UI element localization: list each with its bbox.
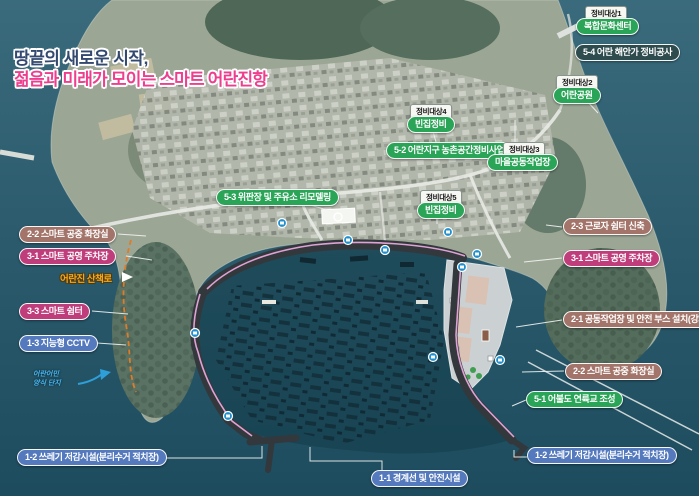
title-line-1: 땅끝의 새로운 시작,: [14, 48, 267, 69]
callout-eoran-park: 어란공원: [553, 87, 601, 104]
callout-empty-house-5: 빈집정비: [417, 202, 465, 219]
callout-waste-facility-left: 1-2 쓰레기 저감시설(분리수거 적치장): [17, 449, 167, 466]
callout-empty-house-4: 빈집정비: [407, 116, 455, 133]
callout-fish-market-remodel: 5-3 위판장 및 주유소 리모델링: [216, 189, 339, 206]
callout-worker-shelter: 2-3 근로자 쉼터 신축: [563, 218, 652, 235]
callout-smart-toilet-left: 2-2 스마트 공중 화장실: [19, 226, 116, 243]
callout-smart-toilet-right: 2-2 스마트 공중 화장실: [565, 363, 662, 380]
callout-smart-parking-right: 3-1 스마트 공영 주차장: [563, 250, 660, 267]
callout-complex-culture-center: 복합문화센터: [576, 18, 639, 35]
callout-smart-shelter: 3-3 스마트 쉼터: [19, 303, 90, 320]
callout-workshop-safety-booth: 2-1 공동작업장 및 안전 부스 설치(강화): [563, 311, 699, 328]
callout-coast-repair: 5-4 어란 해안가 정비공사: [575, 44, 680, 61]
callout-village-workshop: 마을공동작업장: [487, 154, 558, 171]
note-line-1: 어란어민: [33, 371, 59, 378]
label-fishermen-note: 어란어민 양식 단지: [33, 371, 61, 389]
callout-smart-cctv: 1-3 지능형 CCTV: [19, 335, 98, 352]
title-line-2: 젊음과 미래가 모이는 스마트 어란진항: [14, 69, 267, 90]
label-walking-trail: 어란진 산책로: [60, 271, 112, 285]
callout-smart-parking-left: 3-1 스마트 공영 주차장: [19, 248, 116, 265]
callout-island-bridge: 5-1 어불도 연륙교 조성: [526, 391, 623, 408]
page-title: 땅끝의 새로운 시작, 젊음과 미래가 모이는 스마트 어란진항: [14, 48, 267, 91]
booth-marker: [482, 330, 489, 341]
aerial-plan-poster: 땅끝의 새로운 시작, 젊음과 미래가 모이는 스마트 어란진항 정비대상1 복…: [0, 0, 699, 496]
note-line-2: 양식 단지: [33, 380, 61, 387]
callout-boundary-safety: 1-1 경계선 및 안전시설: [371, 470, 468, 487]
callout-waste-facility-right: 1-2 쓰레기 저감시설(분리수거 적치장): [527, 447, 677, 464]
